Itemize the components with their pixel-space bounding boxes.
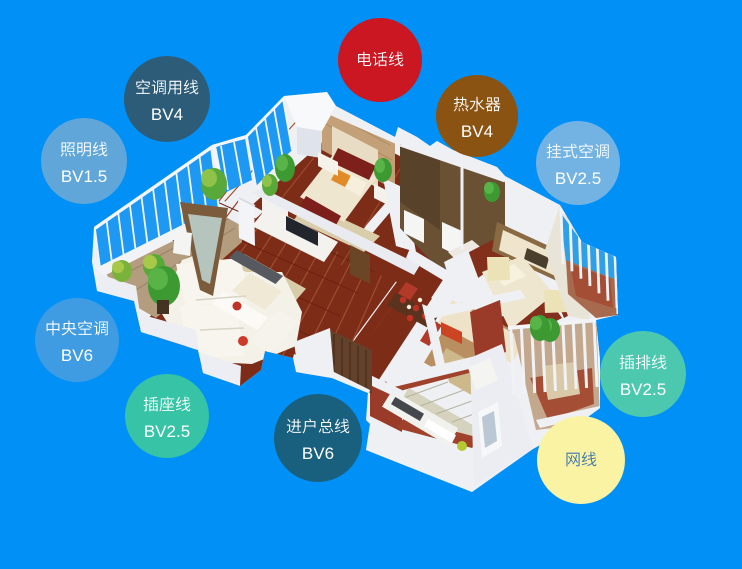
svg-text:BV6: BV6 bbox=[61, 346, 93, 365]
svg-text:BV4: BV4 bbox=[151, 105, 183, 124]
svg-text:BV4: BV4 bbox=[461, 122, 493, 141]
svg-text:BV6: BV6 bbox=[302, 444, 334, 463]
svg-text:BV2.5: BV2.5 bbox=[620, 380, 666, 399]
svg-text:BV2.5: BV2.5 bbox=[555, 169, 601, 188]
svg-text:BV1.5: BV1.5 bbox=[61, 167, 107, 186]
svg-text:BV2.5: BV2.5 bbox=[144, 422, 190, 441]
